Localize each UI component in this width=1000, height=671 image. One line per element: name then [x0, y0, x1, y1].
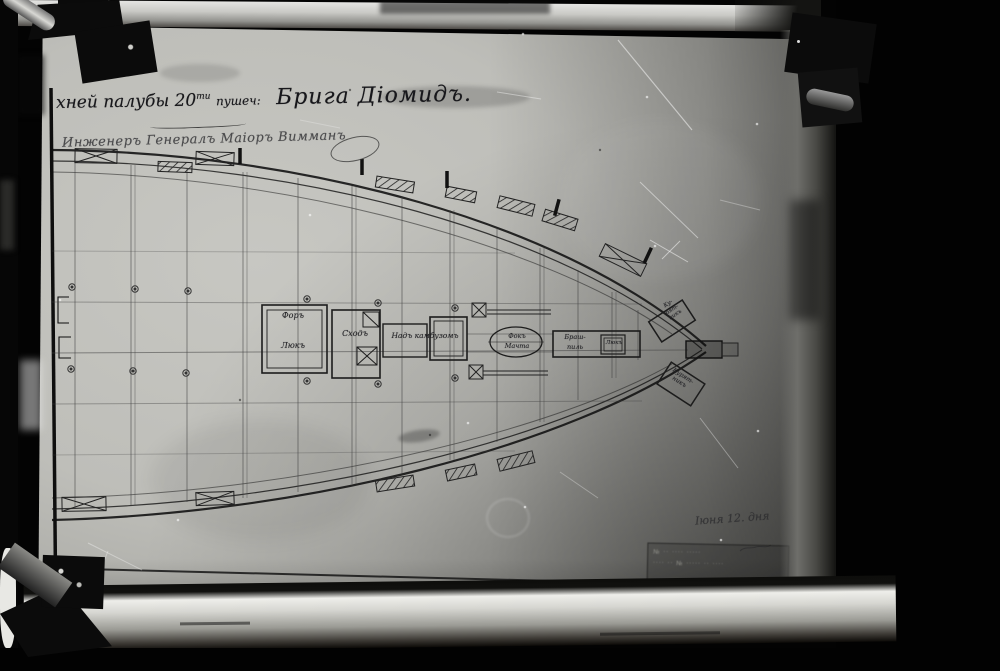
frame-bolt-highlight [797, 40, 800, 43]
gun-count: 20ти [174, 90, 210, 111]
photo-left-glow [0, 180, 14, 250]
label-windlass-2: пиль [558, 344, 592, 351]
label-windlass-1: Браш- [557, 334, 593, 341]
frame-left-highlight [20, 360, 42, 430]
tackle-rails [469, 303, 551, 379]
label-fore-mast-1: Фокъ [498, 333, 536, 340]
photo-bottom-edge [0, 648, 1000, 671]
title-mid: пушеч: [216, 93, 261, 108]
label-fore-hatch-2: Люкъ [270, 342, 316, 350]
deck-houses [262, 305, 640, 378]
label-galley-hatch: Надъ камбузомъ [386, 332, 464, 340]
frame-bottom-rail [24, 575, 897, 652]
title-prefix: хней палубы [56, 91, 170, 113]
frame-right-dark-patch [790, 200, 820, 320]
label-windlass-hatch: Люкъ [603, 341, 625, 347]
sheet-cut-edge [51, 88, 71, 632]
photo-right-dark-area [836, 0, 1000, 671]
photograph-of-framed-ship-plan: хней палубы 20ти пушеч: Брига Діомидъ. И… [0, 0, 1000, 671]
label-fore-mast-2: Мачта [496, 343, 538, 350]
ship-name: Брига Діомидъ. [276, 82, 472, 110]
stamp-line-2: ···· ·· № ····· ·· ···· [653, 558, 783, 572]
frame-top-smudge [380, 0, 550, 14]
label-companionway: Сходъ [332, 330, 378, 338]
frame-left-dark-patch [18, 55, 44, 115]
label-fore-hatch-1: Форъ [270, 312, 316, 320]
